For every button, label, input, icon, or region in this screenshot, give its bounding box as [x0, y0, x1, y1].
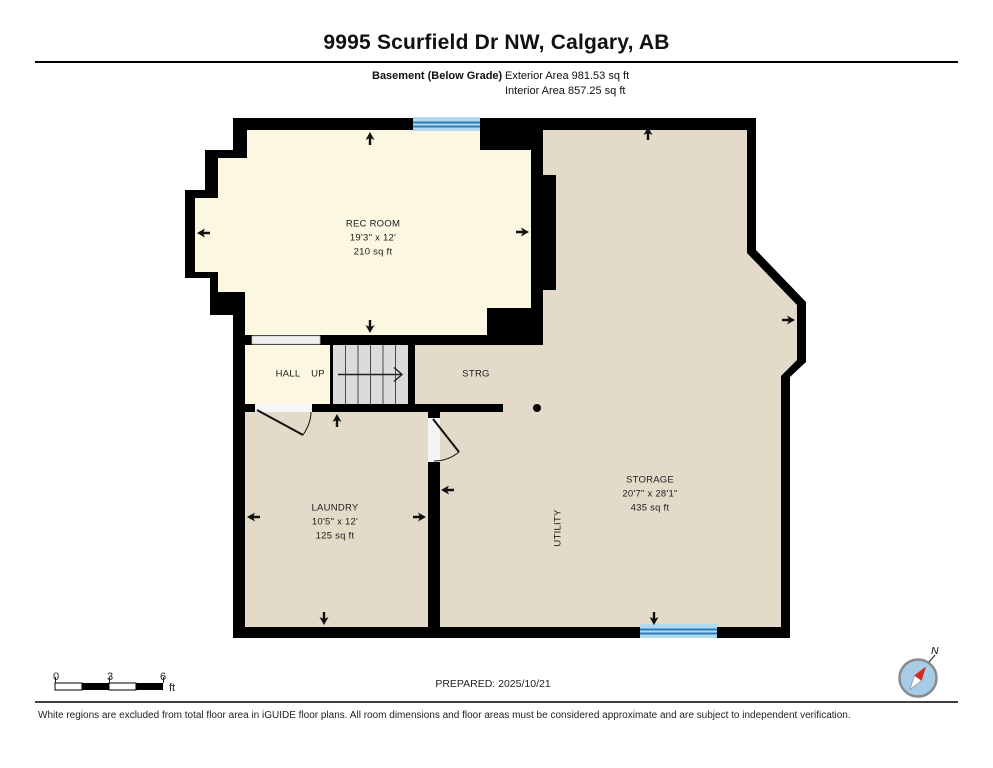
storage-label: STORAGE	[626, 475, 674, 485]
north-label: N	[931, 645, 939, 657]
laundry-label: LAUNDRY	[312, 503, 359, 513]
window-bottom	[640, 624, 717, 638]
rec-room-area: 210 sq ft	[354, 247, 393, 257]
rec-room-dims: 19'3" x 12'	[350, 233, 396, 243]
scale-tick-6: 6	[160, 671, 166, 683]
laundry-area: 125 sq ft	[316, 531, 355, 541]
floorplan-drawing	[0, 0, 993, 768]
prepared-date: PREPARED: 2025/10/21	[435, 678, 550, 690]
stairs-up-label: UP	[311, 369, 325, 379]
scale-unit: ft	[169, 682, 175, 694]
hall-label: HALL	[276, 369, 301, 379]
rec-room-label: REC ROOM	[346, 219, 400, 229]
scale-tick-3: 3	[107, 671, 113, 683]
exterior-area: Exterior Area 981.53 sq ft	[505, 70, 629, 82]
storage-dims: 20'7" x 28'1"	[622, 489, 677, 499]
rec-room-opening	[252, 336, 320, 344]
floorplan-page: 9995 Scurfield Dr NW, Calgary, AB Baseme…	[0, 0, 993, 768]
interior-area: Interior Area 857.25 sq ft	[505, 85, 625, 97]
laundry-dims: 10'5" x 12'	[312, 517, 358, 527]
utility-label: UTILITY	[553, 509, 563, 546]
page-title: 9995 Scurfield Dr NW, Calgary, AB	[0, 31, 993, 55]
staircase	[333, 345, 408, 404]
scale-tick-0: 0	[53, 671, 59, 683]
disclaimer-text: White regions are excluded from total fl…	[38, 710, 851, 721]
window-top	[413, 117, 480, 131]
strg-label: STRG	[462, 369, 489, 379]
storage-area: 435 sq ft	[631, 503, 670, 513]
support-post	[533, 404, 541, 412]
floor-label: Basement (Below Grade)	[372, 70, 502, 82]
compass-icon	[900, 655, 937, 697]
